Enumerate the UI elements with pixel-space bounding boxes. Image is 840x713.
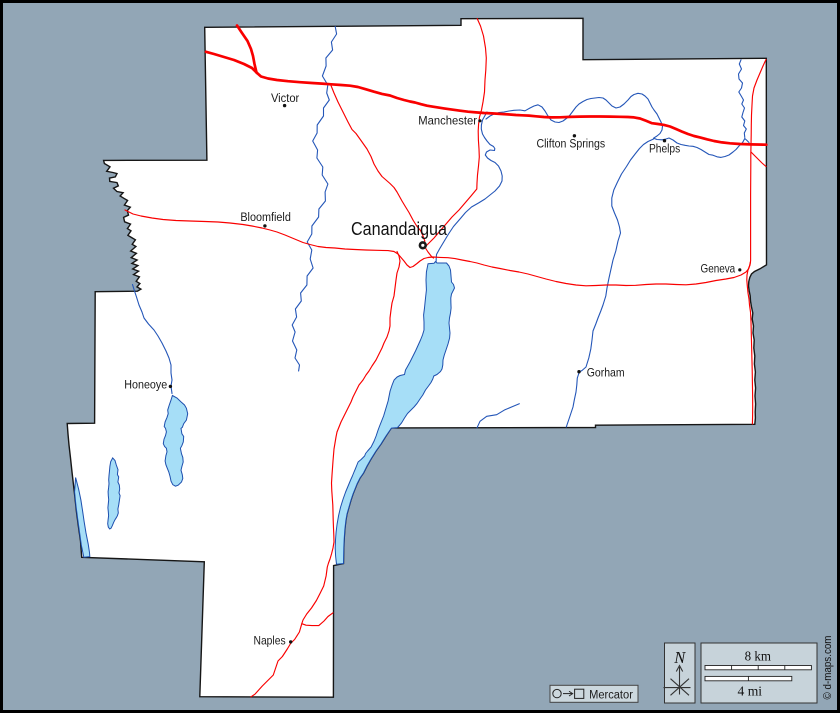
- svg-text:Manchester: Manchester: [418, 113, 477, 127]
- svg-text:4 mi: 4 mi: [738, 684, 763, 699]
- svg-text:Geneva: Geneva: [701, 262, 736, 276]
- svg-text:N: N: [673, 648, 686, 667]
- svg-text:© d-maps.com: © d-maps.com: [822, 636, 834, 700]
- svg-text:8 km: 8 km: [745, 649, 772, 664]
- svg-text:Bloomfield: Bloomfield: [240, 210, 291, 224]
- svg-text:Honeoye: Honeoye: [124, 377, 167, 391]
- svg-text:Canandaigua: Canandaigua: [351, 218, 448, 239]
- svg-text:Naples: Naples: [254, 633, 286, 647]
- svg-text:Clifton Springs: Clifton Springs: [536, 137, 605, 151]
- svg-text:Gorham: Gorham: [587, 365, 625, 379]
- svg-text:Phelps: Phelps: [649, 141, 680, 155]
- svg-text:Mercator: Mercator: [589, 690, 633, 702]
- svg-text:Victor: Victor: [271, 91, 299, 105]
